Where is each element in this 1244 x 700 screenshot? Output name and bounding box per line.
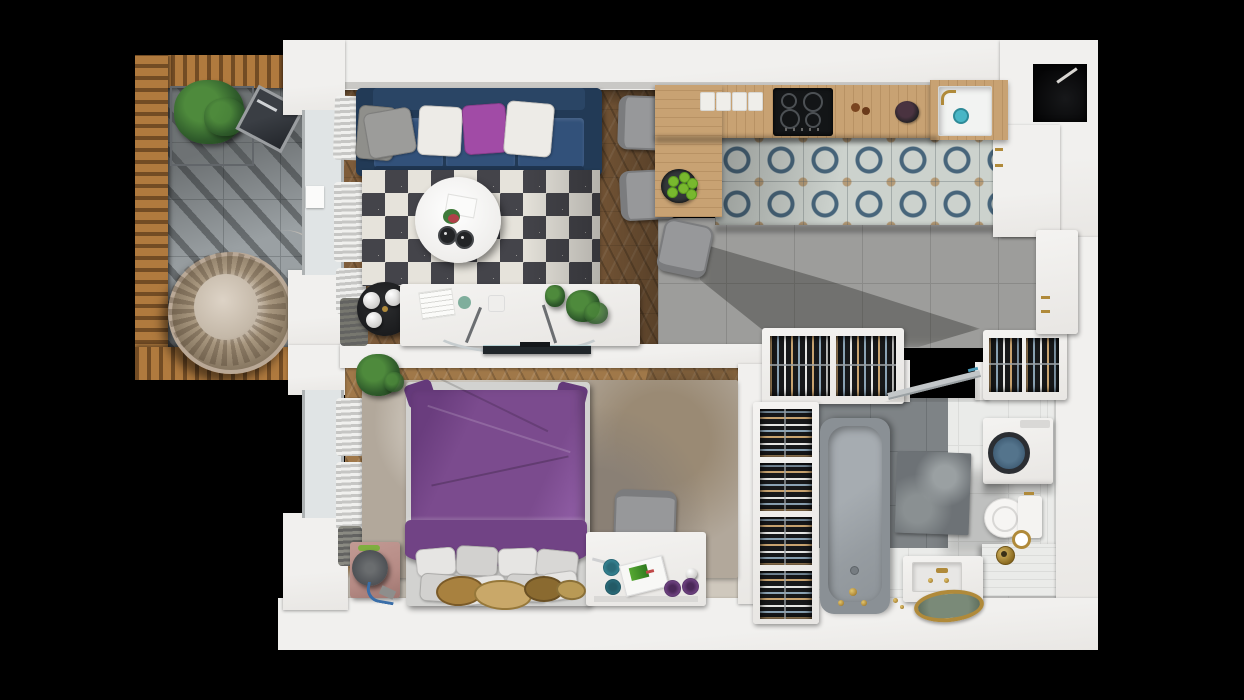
closet-rail: [989, 363, 1022, 365]
floor-gold-dot-1: [893, 598, 898, 603]
wall-bedroom-left-upper: [288, 345, 345, 395]
burner-4: [805, 112, 821, 128]
cooktop-knobs: [785, 128, 819, 131]
living-plant-small: [584, 302, 608, 324]
console-white-box: [488, 295, 505, 312]
bathroom-bench: [982, 544, 1062, 596]
tub-drain: [850, 566, 859, 575]
washer-shadow: [983, 484, 1053, 494]
wall-tv: [483, 346, 591, 354]
console-plant: [545, 285, 565, 307]
closet-tall-bay-2: [760, 463, 812, 511]
wall-kitchen-cabinets: [993, 125, 1060, 237]
sofa-arm-right: [585, 88, 602, 176]
gold-handle-1: [1041, 296, 1050, 299]
bed-pillow-2: [455, 545, 499, 577]
sofa-pillow-purple: [461, 103, 508, 156]
closet-rail: [836, 364, 896, 366]
tub-gold-handle-2: [861, 600, 867, 606]
white-board-1: [700, 92, 715, 111]
sink-block-gold-faucet: [936, 568, 948, 573]
console-sage-coaster: [458, 296, 471, 309]
apple-4: [667, 187, 678, 198]
side-table-gold-stem: [382, 306, 388, 312]
toilet-gold-detail: [1024, 492, 1034, 495]
apple-6: [686, 189, 697, 200]
burner-3: [780, 109, 800, 129]
toilet-paper-roll: [1012, 530, 1031, 549]
candle-1: [438, 226, 457, 245]
fruit-bowl-dark: [895, 101, 919, 123]
window-living-handle: [306, 186, 324, 208]
desk-purple-knob-1: [664, 580, 681, 597]
curtain-living-2: [334, 182, 364, 262]
closet-rail: [784, 409, 786, 457]
desk-purple-knob-2: [682, 578, 699, 595]
closet-tall-bay-3: [760, 517, 812, 565]
hanging-chair-cushion: [194, 274, 258, 340]
gold-handle-cabinet: [1036, 230, 1078, 334]
kitchen-tile-edge-shadow: [715, 225, 1010, 233]
curtain-bedroom-2: [336, 462, 364, 530]
white-board-2: [716, 92, 731, 111]
bath-mat: [895, 451, 972, 536]
sink-block-basin: [912, 562, 962, 592]
closet-rail: [784, 463, 786, 511]
closet-tall-bay-4: [760, 571, 812, 619]
cabinet-handle-2: [995, 164, 1003, 167]
kitchen-tile-shadow: [715, 138, 875, 225]
waste-bin-lid-dot: [1001, 551, 1007, 557]
counter-edge-shadow: [655, 136, 938, 143]
desk-front-slot: [594, 596, 698, 602]
sink-gold-knob-1: [928, 578, 933, 583]
pergola-left-beam: [135, 55, 168, 380]
tv-stand: [520, 342, 550, 347]
candle-2: [455, 230, 474, 249]
tub-gold-handle-1: [838, 600, 844, 606]
white-board-3: [732, 92, 747, 111]
desk-teal-cup-1: [603, 559, 620, 576]
pepper-mill-1: [851, 103, 860, 112]
washer-top-vent: [1020, 420, 1050, 428]
coffee-table-flowers-red: [448, 214, 459, 223]
console-open-book: [418, 288, 456, 320]
burner-2: [803, 92, 823, 112]
decor-sphere-3: [366, 312, 382, 328]
sink-gold-knob-2: [944, 578, 949, 583]
closet-rail: [770, 364, 830, 366]
closet-top-bay-2: [836, 336, 896, 396]
bathtub-basin: [828, 426, 882, 602]
floorplan-stage: [0, 0, 1244, 700]
apple-1: [668, 176, 679, 187]
bed-pillow-3: [498, 547, 539, 576]
closet-rail: [784, 571, 786, 619]
pepper-mill-2: [862, 107, 870, 115]
sofa-pillow-white-2: [503, 100, 556, 158]
bedroom-plant-small: [384, 372, 404, 392]
closet-top-bay-1: [770, 336, 830, 396]
ventilation-shaft: [1033, 64, 1087, 122]
closet-right-bay-2: [1026, 338, 1059, 392]
sofa-pillow-white-1: [417, 105, 464, 157]
decor-sphere-1: [363, 292, 380, 309]
cabinet-handle-1: [995, 148, 1003, 151]
toilet-seat-ring: [992, 506, 1018, 532]
gold-handle-2: [1041, 310, 1050, 313]
tub-gold-spout: [849, 588, 857, 596]
burner-1: [781, 93, 797, 109]
closet-rail: [1026, 363, 1059, 365]
floor-gold-dot-2: [900, 605, 904, 609]
candle-1-wick: [444, 232, 447, 235]
sink-teal-dot: [953, 108, 969, 124]
closet-tall-bay-1: [760, 409, 812, 457]
curtain-bedroom-1: [336, 398, 364, 456]
sink-gold-faucet: [941, 90, 956, 105]
closet-rail: [784, 517, 786, 565]
desk-teal-cup-2: [605, 579, 621, 595]
washer-door: [988, 432, 1030, 474]
rug-shadow: [520, 170, 600, 286]
candle-2-wick: [461, 236, 464, 239]
sofa-pillow-gray: [362, 106, 417, 160]
white-board-4: [748, 92, 763, 111]
table-lamp-shade: [352, 550, 388, 586]
closet-right-bay-1: [989, 338, 1022, 392]
